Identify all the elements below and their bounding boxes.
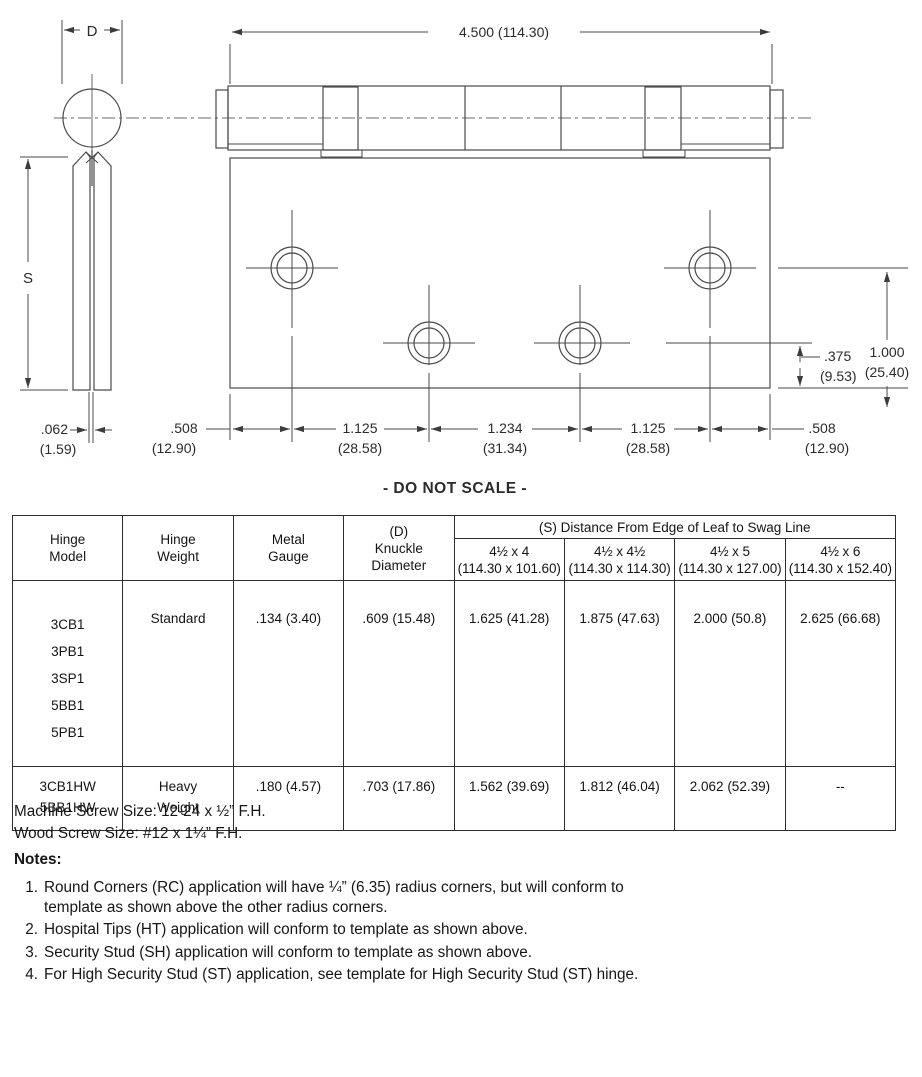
th-size-4x6: 4½ x 6 (114.30 x 152.40) [785, 539, 895, 581]
note-text: Security Stud (SH) application will conf… [44, 943, 532, 963]
note-number: 2. [14, 920, 38, 940]
dim-overall: 4.500 (114.30) [459, 24, 549, 40]
hinge-spec-table: Hinge Model Hinge Weight Metal Gauge (D)… [12, 515, 896, 831]
dimension-leaf-gap [70, 392, 112, 443]
dim-row-edge-in: 1.000 [869, 344, 904, 360]
cell-s2: 1.812 (46.04) [564, 767, 674, 831]
hinge-leaf-left-edge [73, 152, 90, 390]
dimension-labels: D S .062 (1.59) 4.500 (114.30) .508 (12.… [23, 23, 909, 497]
hole-centerlines [246, 210, 908, 442]
machine-screw-size: Machine Screw Size: 12-24 x ½” F.H. [14, 801, 266, 823]
dim-gap-in: .062 [41, 421, 68, 437]
dim-hole-edge-in: .375 [824, 348, 851, 364]
barrel-tip-left [216, 90, 228, 148]
notes-section: Notes: 1. Round Corners (RC) application… [14, 851, 638, 988]
note-item: 3. Security Stud (SH) application will c… [14, 943, 638, 963]
hinge-side-view [20, 20, 122, 443]
notes-title: Notes: [14, 851, 638, 869]
dim-pitch2-mm: (31.34) [483, 440, 527, 456]
hinge-leaf-right-edge [94, 152, 111, 390]
barrel-tip-right [770, 90, 783, 148]
cell-knuckle: .609 (15.48) [344, 581, 454, 767]
dim-edge-right-in: .508 [808, 420, 835, 436]
dim-pitch3-in: 1.125 [630, 420, 665, 436]
screw-holes [271, 247, 731, 364]
note-number: 1. [14, 878, 38, 917]
note-item: 4. For High Security Stud (ST) applicati… [14, 965, 638, 985]
th-swag-distance-group: (S) Distance From Edge of Leaf to Swag L… [454, 516, 896, 539]
cell-gauge: .134 (3.40) [233, 581, 343, 767]
th-size-4x45: 4½ x 4½ (114.30 x 114.30) [564, 539, 674, 581]
label-d: D [87, 23, 98, 40]
cell-s1: 1.625 (41.28) [454, 581, 564, 767]
note-text: Hospital Tips (HT) application will conf… [44, 920, 528, 940]
table-header-row: Hinge Model Hinge Weight Metal Gauge (D)… [13, 516, 896, 539]
dim-pitch1-in: 1.125 [342, 420, 377, 436]
dim-row-edge-mm: (25.40) [865, 364, 909, 380]
label-s: S [23, 270, 33, 287]
note-item: 2. Hospital Tips (HT) application will c… [14, 920, 638, 940]
cell-s3: 2.000 (50.8) [675, 581, 785, 767]
th-hinge-weight: Hinge Weight [123, 516, 233, 581]
th-hinge-model: Hinge Model [13, 516, 123, 581]
cell-models: 3CB1 3PB1 3SP1 5BB1 5PB1 [13, 581, 123, 767]
cell-s4: -- [785, 767, 895, 831]
wood-screw-size: Wood Screw Size: #12 x 1¼” F.H. [14, 823, 266, 845]
table-row-standard: 3CB1 3PB1 3SP1 5BB1 5PB1 Standard .134 (… [13, 581, 896, 767]
dim-edge-left-in: .508 [170, 420, 197, 436]
hinge-front-view [206, 32, 908, 442]
note-text: For High Security Stud (ST) application,… [44, 965, 638, 985]
cell-s3: 2.062 (52.39) [675, 767, 785, 831]
dim-pitch1-mm: (28.58) [338, 440, 382, 456]
cell-s4: 2.625 (66.68) [785, 581, 895, 767]
th-metal-gauge: Metal Gauge [233, 516, 343, 581]
th-knuckle-diameter: (D) Knuckle Diameter [344, 516, 454, 581]
dim-edge-left-mm: (12.90) [152, 440, 196, 456]
cell-knuckle: .703 (17.86) [344, 767, 454, 831]
dim-pitch2-in: 1.234 [487, 420, 522, 436]
do-not-scale-label: - DO NOT SCALE - [383, 480, 527, 497]
hinge-template-drawing: D S .062 (1.59) 4.500 (114.30) .508 (12.… [0, 0, 922, 505]
note-number: 3. [14, 943, 38, 963]
screw-sizes: Machine Screw Size: 12-24 x ½” F.H. Wood… [14, 801, 266, 844]
cell-weight: Standard [123, 581, 233, 767]
hinge-template-page: D S .062 (1.59) 4.500 (114.30) .508 (12.… [0, 0, 922, 1077]
note-text: Round Corners (RC) application will have… [44, 878, 624, 917]
dim-gap-mm: (1.59) [40, 441, 77, 457]
dim-hole-edge-mm: (9.53) [820, 368, 857, 384]
dim-pitch3-mm: (28.58) [626, 440, 670, 456]
cell-s1: 1.562 (39.69) [454, 767, 564, 831]
th-size-4x5: 4½ x 5 (114.30 x 127.00) [675, 539, 785, 581]
cell-s2: 1.875 (47.63) [564, 581, 674, 767]
note-item: 1. Round Corners (RC) application will h… [14, 878, 638, 917]
dim-edge-right-mm: (12.90) [805, 440, 849, 456]
th-size-4x4: 4½ x 4 (114.30 x 101.60) [454, 539, 564, 581]
note-number: 4. [14, 965, 38, 985]
